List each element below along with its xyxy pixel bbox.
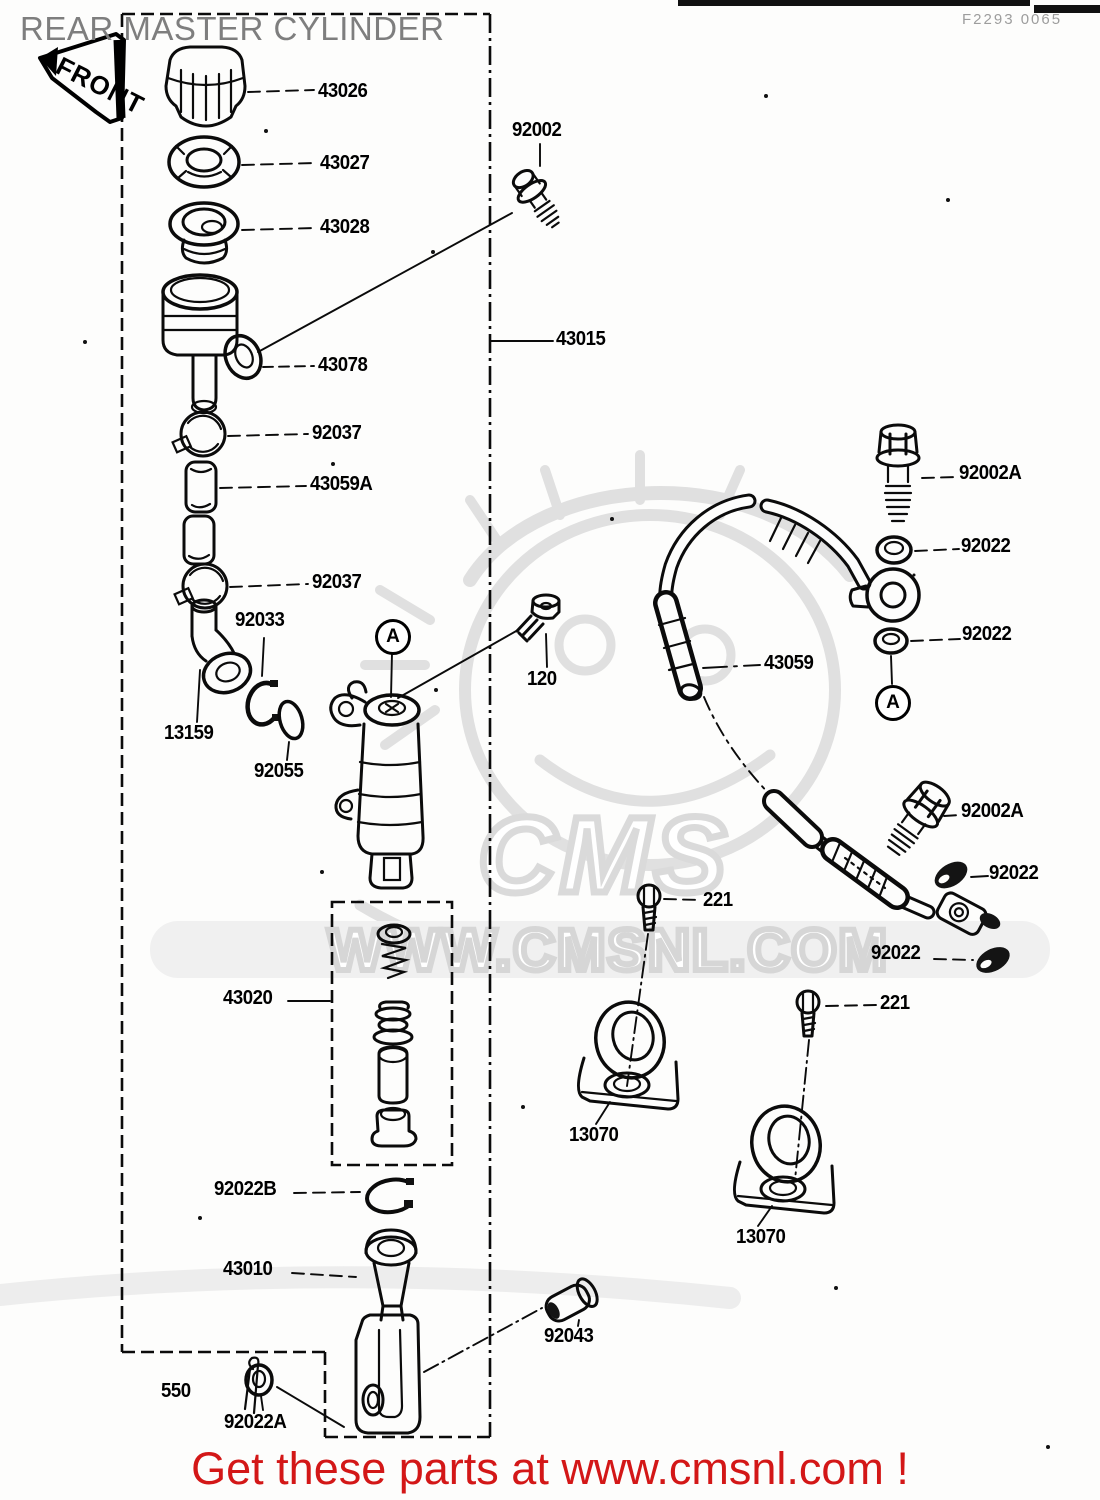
part-diaphragm-43028: [170, 203, 316, 263]
part-label-92002: 92002: [512, 120, 561, 140]
part-label-550: 550: [161, 1381, 191, 1401]
part-label-92002A-2: 92002A: [961, 801, 1023, 821]
part-kitbox-43020: [288, 902, 452, 1165]
cmsnl-footer-banner: Get these parts at www.cmsnl.com !: [0, 1443, 1100, 1495]
circled-marker-A-right: A: [875, 685, 911, 721]
part-label-43027: 43027: [320, 153, 369, 173]
part-label-92022-2: 92022: [962, 624, 1011, 644]
part-washer-92022-4: [934, 942, 1014, 978]
part-label-92022-1: 92022: [961, 536, 1010, 556]
part-cylinder-body: [331, 653, 423, 888]
part-label-43020: 43020: [223, 988, 272, 1008]
part-label-43015: 43015: [556, 329, 605, 349]
part-label-92022-3: 92022: [989, 863, 1038, 883]
part-label-43078: 43078: [318, 355, 367, 375]
fiche-code: F2293 0065: [962, 11, 1062, 28]
part-label-221-2: 221: [880, 993, 910, 1013]
part-bolt-92002: [258, 144, 568, 352]
part-label-92022-4: 92022: [871, 943, 920, 963]
part-label-92033: 92033: [235, 610, 284, 630]
part-label-13070-1: 13070: [569, 1125, 618, 1145]
part-label-92037-2: 92037: [312, 572, 361, 592]
circled-marker-A-left: A: [375, 619, 411, 655]
part-label-221-1: 221: [703, 890, 733, 910]
part-bracket-13070-right: [734, 1100, 834, 1226]
front-sign-text: FRONT: [51, 51, 149, 121]
part-snapring-92033: [248, 638, 280, 724]
part-label-92043: 92043: [544, 1326, 593, 1346]
part-hose-43059A: [184, 462, 306, 564]
part-label-13159: 13159: [164, 723, 213, 743]
parts-diagram: FRONT: [0, 0, 1100, 1500]
part-oring-92055: [275, 699, 307, 760]
part-bracket-13070-left: [578, 996, 678, 1124]
part-banjobolt-92002A-lower: [877, 776, 960, 863]
part-pushrod-43010: [292, 1230, 420, 1433]
part-cap-43026: [166, 47, 314, 126]
part-label-92037-1: 92037: [312, 423, 361, 443]
part-washer-92022-3: [930, 856, 988, 894]
part-label-92022A: 92022A: [224, 1412, 286, 1432]
part-snapring-92022B: [294, 1178, 414, 1212]
scan-noise: [83, 94, 1050, 1449]
part-label-13070-2: 13070: [736, 1227, 785, 1247]
part-label-92002A-1: 92002A: [959, 463, 1021, 483]
part-clamp-92037-upper: [173, 412, 308, 456]
part-washer-92022-1: [877, 537, 959, 563]
part-label-92022B: 92022B: [214, 1179, 276, 1199]
part-banjobolt-92002A-upper: [877, 425, 957, 521]
part-label-43028: 43028: [320, 217, 369, 237]
part-label-43010: 43010: [223, 1259, 272, 1279]
part-label-43059: 43059: [764, 653, 813, 673]
parts-fiche-page: CMS WWW.CMSNL.COM: [0, 0, 1100, 1500]
part-label-120: 120: [527, 669, 557, 689]
page-title: REAR MASTER CYLINDER: [20, 10, 444, 48]
part-label-92055: 92055: [254, 761, 303, 781]
part-ring-43027: [169, 137, 316, 187]
part-washer-92022-2: [875, 629, 960, 684]
part-label-43059A: 43059A: [310, 474, 372, 494]
scan-edge-strip: [678, 0, 1030, 6]
part-reservoir-43078: [163, 275, 314, 413]
part-pin-92043: [424, 1276, 601, 1372]
part-label-43026: 43026: [318, 81, 367, 101]
